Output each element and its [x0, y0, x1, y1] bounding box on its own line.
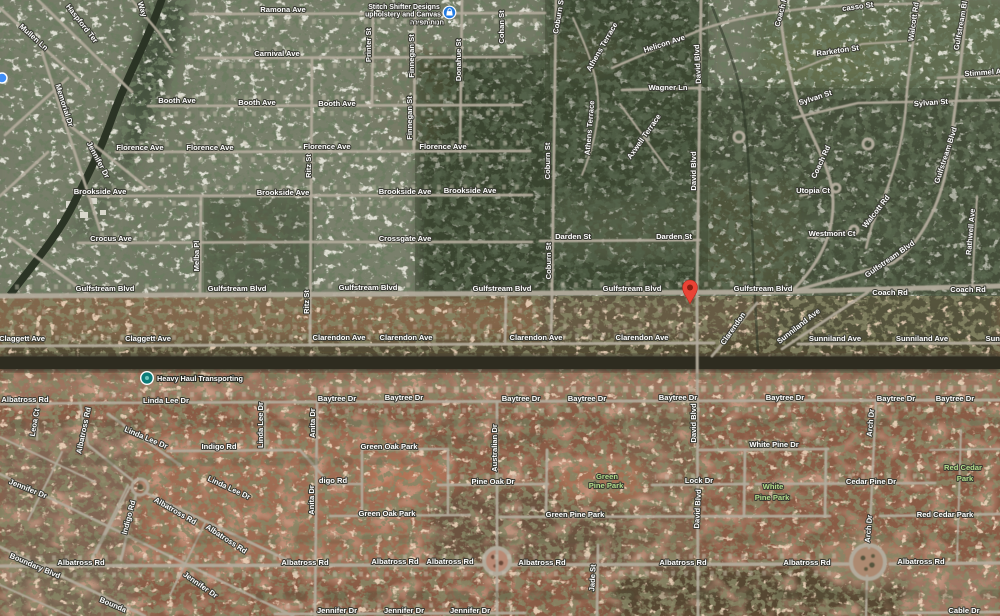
svg-text:upholstery and Canvas: upholstery and Canvas — [365, 12, 441, 19]
svg-text:Red Cedar: Red Cedar — [944, 463, 982, 472]
svg-text:Anita Dr: Anita Dr — [308, 408, 317, 438]
svg-text:Gulfstream Blvd: Gulfstream Blvd — [473, 284, 532, 293]
svg-text:Gulfstream Blvd: Gulfstream Blvd — [734, 284, 793, 293]
svg-text:Brookside Ave: Brookside Ave — [379, 187, 432, 196]
svg-text:Brookside Ave: Brookside Ave — [257, 188, 310, 197]
svg-text:Sunniland Ave: Sunniland Ave — [809, 334, 861, 343]
svg-text:Darden St: Darden St — [555, 232, 591, 241]
svg-text:White Pine Dr: White Pine Dr — [749, 440, 798, 449]
svg-text:Jennifer Dr: Jennifer Dr — [450, 606, 490, 615]
svg-text:Pine Oak Dr: Pine Oak Dr — [471, 477, 514, 486]
svg-text:David Blvd: David Blvd — [689, 151, 698, 191]
svg-text:Albatross Rd: Albatross Rd — [371, 557, 419, 566]
svg-text:Linda Lee Dr: Linda Lee Dr — [256, 402, 265, 448]
svg-text:Westmont Ct: Westmont Ct — [809, 229, 856, 238]
svg-text:Florence Ave: Florence Ave — [419, 142, 466, 151]
svg-text:Clarendon Ave: Clarendon Ave — [615, 333, 668, 342]
svg-text:Booth Ave: Booth Ave — [318, 99, 355, 108]
svg-text:Gulfstream Blvd: Gulfstream Blvd — [603, 284, 662, 293]
svg-text:Florence Ave: Florence Ave — [116, 143, 163, 152]
svg-text:Green Oak Park: Green Oak Park — [359, 509, 417, 518]
svg-text:Park: Park — [957, 474, 974, 483]
svg-text:Ritz St: Ritz St — [302, 290, 311, 314]
svg-text:Donahue St: Donahue St — [454, 38, 463, 81]
svg-text:Claggett Ave: Claggett Ave — [0, 334, 45, 343]
svg-text:Gulfstream Blvd: Gulfstream Blvd — [208, 284, 267, 293]
svg-text:Baytree Dr: Baytree Dr — [766, 393, 804, 402]
svg-text:David Blvd: David Blvd — [689, 403, 698, 443]
svg-text:White: White — [763, 482, 784, 491]
svg-text:Gulfstream Blvd: Gulfstream Blvd — [339, 283, 398, 292]
svg-text:Australian Dr: Australian Dr — [490, 424, 499, 472]
svg-text:Indigo Rd: Indigo Rd — [201, 442, 236, 451]
svg-text:Clarendon Ave: Clarendon Ave — [379, 333, 432, 342]
svg-text:Clarendon Ave: Clarendon Ave — [509, 333, 562, 342]
svg-text:Baytree Dr: Baytree Dr — [568, 394, 606, 403]
svg-text:Crossgate Ave: Crossgate Ave — [379, 234, 432, 243]
svg-text:Sunniland Ave: Sunniland Ave — [896, 334, 948, 343]
svg-text:Heavy Haul Transporting: Heavy Haul Transporting — [157, 374, 243, 383]
svg-text:Albatross Rd: Albatross Rd — [897, 557, 945, 566]
svg-text:Albatross Rd: Albatross Rd — [281, 558, 329, 567]
svg-text:Carnival Ave: Carnival Ave — [254, 49, 299, 58]
svg-text:Gulfstream Blvd: Gulfstream Blvd — [76, 284, 135, 293]
svg-text:Florence Ave: Florence Ave — [186, 143, 233, 152]
svg-text:Brookside Ave: Brookside Ave — [444, 186, 497, 195]
svg-text:Sunn: Sunn — [986, 334, 1000, 343]
svg-text:Baytree Dr: Baytree Dr — [318, 394, 356, 403]
svg-text:Albatross Rd: Albatross Rd — [518, 558, 566, 567]
svg-text:Baytree Dr: Baytree Dr — [877, 394, 915, 403]
svg-text:Albatross Rd: Albatross Rd — [783, 558, 831, 567]
svg-text:Crocus Ave: Crocus Ave — [90, 234, 132, 243]
svg-text:Baytree Dr: Baytree Dr — [385, 393, 423, 402]
svg-text:Lock Dr: Lock Dr — [685, 476, 713, 485]
svg-text:Melba Pl: Melba Pl — [192, 241, 201, 272]
svg-text:Pine Park: Pine Park — [589, 481, 624, 490]
svg-text:Finnegan St: Finnegan St — [407, 34, 416, 78]
svg-text:Coburn St: Coburn St — [544, 242, 553, 279]
svg-text:Booth Ave: Booth Ave — [238, 98, 275, 107]
svg-text:Florence Ave: Florence Ave — [303, 142, 350, 151]
svg-text:Finnegan St: Finnegan St — [405, 96, 414, 140]
svg-text:Clarendon Ave: Clarendon Ave — [312, 333, 365, 342]
svg-text:Wagner Ln: Wagner Ln — [649, 83, 688, 92]
svg-text:Baytree Dr: Baytree Dr — [659, 393, 697, 402]
svg-text:Jade St: Jade St — [587, 564, 597, 592]
svg-text:Green: Green — [596, 472, 618, 481]
svg-text:Pine Park: Pine Park — [755, 493, 790, 502]
svg-text:Albatross Rd: Albatross Rd — [57, 558, 105, 567]
svg-text:Red Cedar Park: Red Cedar Park — [917, 510, 974, 519]
svg-text:Coach Rd: Coach Rd — [950, 285, 986, 294]
svg-text:Darden St: Darden St — [656, 232, 692, 241]
svg-text:Baytree Dr: Baytree Dr — [502, 394, 540, 403]
svg-text:חנות תפירה: חנות תפירה — [410, 20, 444, 27]
svg-text:Stitch Shifter Designs: Stitch Shifter Designs — [368, 4, 440, 11]
svg-text:Baytree Dr: Baytree Dr — [936, 394, 974, 403]
svg-text:Cohan St: Cohan St — [497, 10, 506, 44]
svg-text:Booth Ave: Booth Ave — [158, 96, 195, 105]
svg-text:Linda Lee Dr: Linda Lee Dr — [143, 396, 189, 405]
svg-text:Jennifer Dr: Jennifer Dr — [384, 606, 424, 615]
svg-text:Albatross Rd: Albatross Rd — [1, 395, 49, 404]
svg-text:Ramona Ave: Ramona Ave — [260, 5, 305, 14]
svg-text:digo Rd: digo Rd — [319, 476, 348, 485]
svg-text:Coburn St: Coburn St — [543, 142, 552, 179]
svg-text:Utopia Ct: Utopia Ct — [796, 186, 830, 195]
svg-text:Brookside Ave: Brookside Ave — [74, 187, 127, 196]
svg-text:Green Oak Park: Green Oak Park — [361, 442, 419, 451]
svg-text:Printer St: Printer St — [364, 27, 373, 62]
svg-text:Cable Dr: Cable Dr — [948, 606, 979, 615]
svg-text:Coach Rd: Coach Rd — [872, 288, 908, 297]
svg-text:Cedar Pine Dr: Cedar Pine Dr — [846, 477, 896, 486]
svg-text:Claggett Ave: Claggett Ave — [125, 334, 171, 343]
svg-text:Anita Dr: Anita Dr — [307, 485, 316, 515]
svg-text:Albatross Rd: Albatross Rd — [426, 557, 474, 566]
svg-text:Jennifer Dr: Jennifer Dr — [317, 606, 357, 615]
svg-text:Albatross Rd: Albatross Rd — [659, 558, 707, 567]
svg-text:Ritz St: Ritz St — [304, 154, 313, 178]
svg-text:Green Pine Park: Green Pine Park — [546, 510, 605, 519]
